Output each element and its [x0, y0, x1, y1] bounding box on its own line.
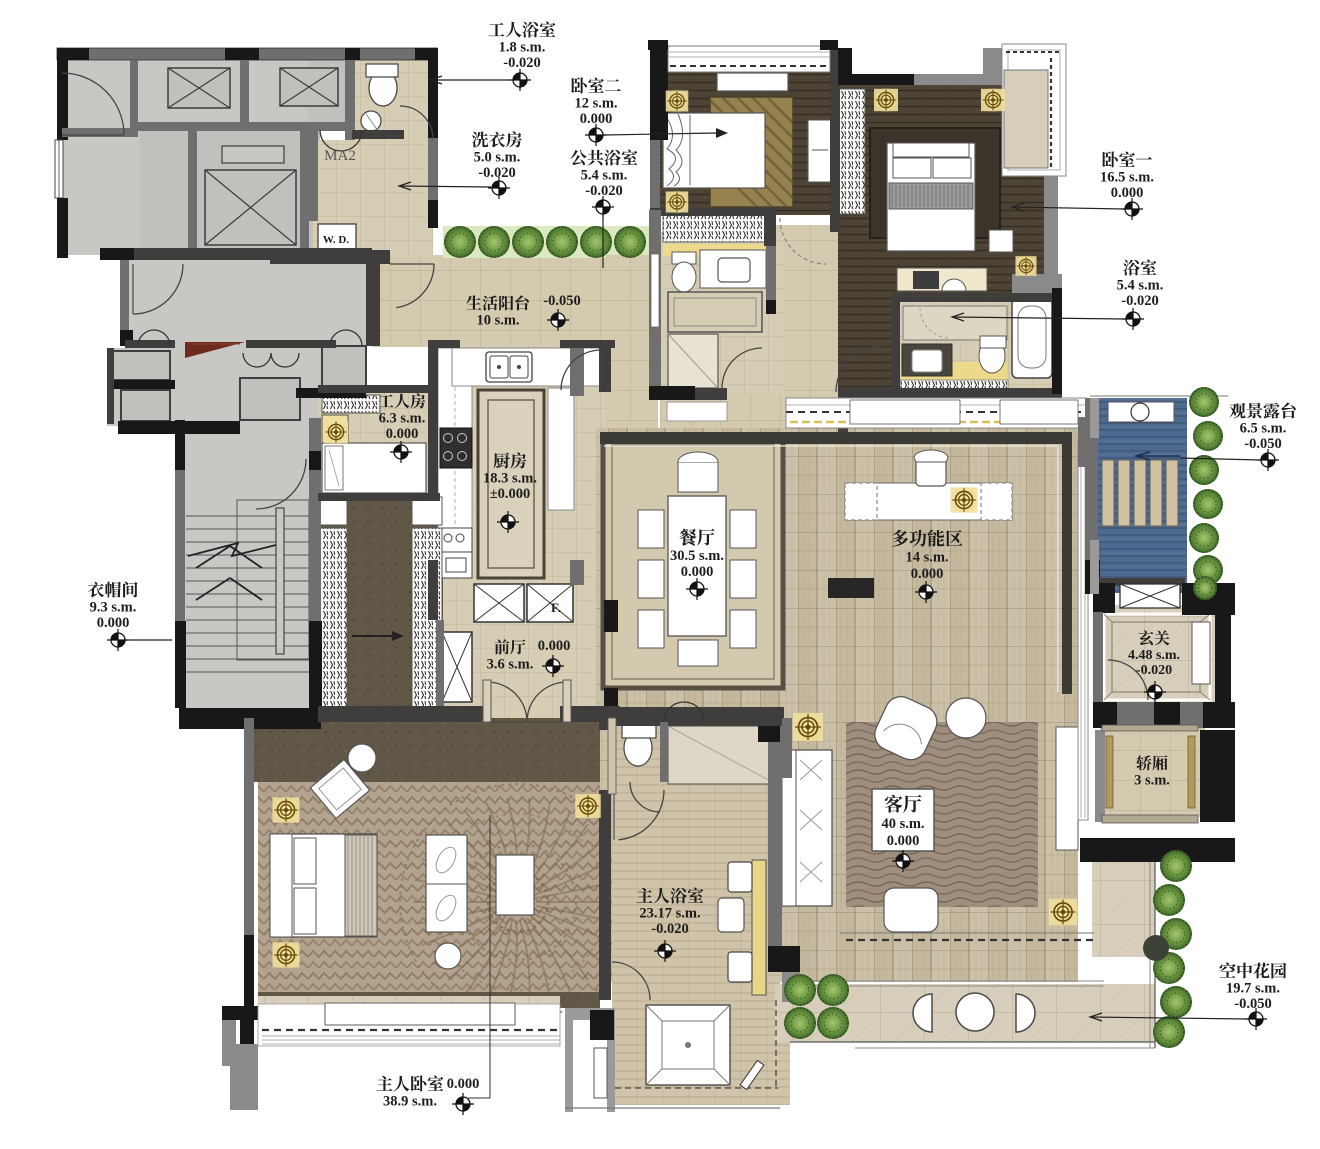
svg-text:-0.020: -0.020 — [503, 55, 540, 71]
svg-text:-0.020: -0.020 — [1136, 663, 1172, 678]
svg-text:1.8 s.m.: 1.8 s.m. — [499, 40, 546, 56]
svg-text:3 s.m.: 3 s.m. — [1134, 773, 1170, 789]
svg-text:0.000: 0.000 — [97, 615, 130, 631]
svg-text:-0.020: -0.020 — [1121, 293, 1158, 309]
svg-text:6.5 s.m.: 6.5 s.m. — [1240, 421, 1287, 437]
svg-text:MA2: MA2 — [324, 148, 356, 164]
svg-text:-0.020: -0.020 — [651, 921, 688, 937]
svg-text:0.000: 0.000 — [887, 833, 920, 849]
svg-text:18.3 s.m.: 18.3 s.m. — [483, 471, 537, 487]
svg-text:6.3 s.m.: 6.3 s.m. — [379, 411, 426, 427]
svg-text:40 s.m.: 40 s.m. — [881, 816, 924, 832]
svg-text:5.0 s.m.: 5.0 s.m. — [474, 150, 521, 166]
svg-text:-0.050: -0.050 — [543, 293, 580, 309]
svg-text:0.000: 0.000 — [681, 564, 714, 580]
svg-text:12 s.m.: 12 s.m. — [574, 96, 617, 112]
svg-text:-0.020: -0.020 — [478, 165, 515, 181]
svg-text:±0.000: ±0.000 — [490, 486, 531, 502]
svg-text:0.000: 0.000 — [386, 426, 419, 442]
svg-text:-0.020: -0.020 — [585, 183, 622, 199]
svg-text:0.000: 0.000 — [538, 638, 571, 654]
svg-text:5.4 s.m.: 5.4 s.m. — [581, 168, 628, 184]
svg-text:30.5 s.m.: 30.5 s.m. — [670, 548, 724, 564]
svg-text:4.48 s.m.: 4.48 s.m. — [1128, 648, 1180, 663]
svg-text:23.17 s.m.: 23.17 s.m. — [639, 906, 700, 922]
svg-text:0.000: 0.000 — [1111, 185, 1144, 201]
svg-text:38.9 s.m.: 38.9 s.m. — [383, 1094, 437, 1110]
svg-text:-0.050: -0.050 — [1244, 436, 1281, 452]
svg-text:-0.050: -0.050 — [1234, 996, 1271, 1012]
svg-text:0.000: 0.000 — [447, 1076, 480, 1092]
svg-text:5.4 s.m.: 5.4 s.m. — [1117, 278, 1164, 294]
svg-text:19.7 s.m.: 19.7 s.m. — [1226, 981, 1280, 997]
svg-text:14 s.m.: 14 s.m. — [905, 550, 948, 566]
svg-text:F.: F. — [551, 600, 561, 615]
svg-text:16.5 s.m.: 16.5 s.m. — [1100, 170, 1154, 186]
svg-text:10 s.m.: 10 s.m. — [476, 313, 519, 329]
svg-text:W. D.: W. D. — [323, 234, 349, 246]
svg-text:0.000: 0.000 — [911, 566, 944, 582]
svg-text:9.3 s.m.: 9.3 s.m. — [90, 600, 137, 616]
svg-text:3.6 s.m.: 3.6 s.m. — [487, 657, 534, 673]
